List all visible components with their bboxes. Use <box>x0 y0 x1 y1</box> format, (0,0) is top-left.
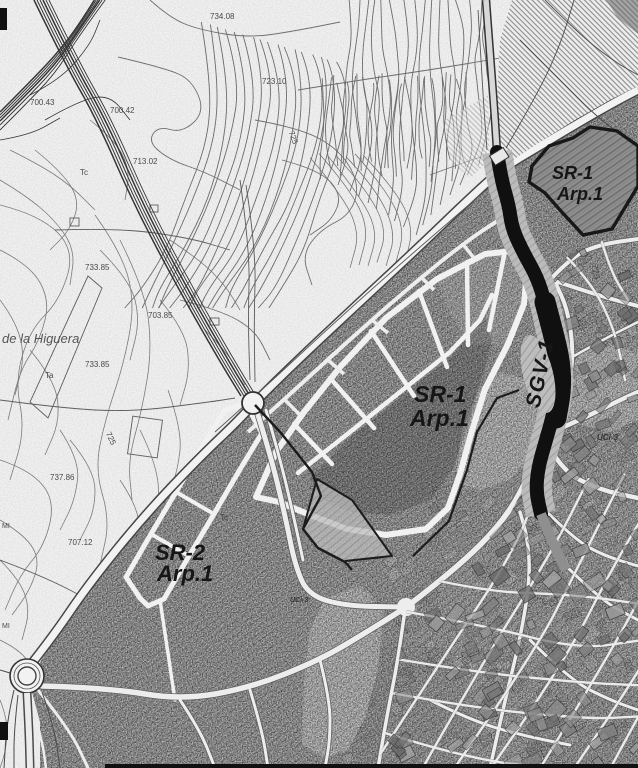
svg-text:700.42: 700.42 <box>110 106 135 115</box>
svg-text:UCi-3: UCi-3 <box>597 433 618 442</box>
svg-text:713.02: 713.02 <box>133 157 158 166</box>
svg-text:737.86: 737.86 <box>50 473 75 482</box>
svg-text:Arp.1: Arp.1 <box>409 405 469 431</box>
svg-text:UCi-3: UCi-3 <box>290 597 308 604</box>
svg-text:MI: MI <box>2 523 10 530</box>
svg-text:733.85: 733.85 <box>85 360 110 369</box>
svg-text:Tc: Tc <box>80 168 88 177</box>
svg-text:Tc: Tc <box>220 513 228 522</box>
svg-text:SR-1: SR-1 <box>414 381 466 407</box>
svg-text:707.12: 707.12 <box>68 538 93 547</box>
svg-text:de la Higuera: de la Higuera <box>2 331 79 346</box>
svg-text:Arp.1: Arp.1 <box>556 184 603 204</box>
svg-text:700.43: 700.43 <box>30 98 55 107</box>
svg-text:734.08: 734.08 <box>210 12 235 21</box>
svg-text:723.10: 723.10 <box>262 77 287 86</box>
svg-text:733.85: 733.85 <box>85 263 110 272</box>
svg-text:Ta: Ta <box>45 371 54 380</box>
svg-text:SR-1: SR-1 <box>552 163 593 183</box>
svg-text:MI: MI <box>2 623 10 630</box>
svg-text:Arp.1: Arp.1 <box>156 561 213 586</box>
svg-text:703.85: 703.85 <box>148 311 173 320</box>
